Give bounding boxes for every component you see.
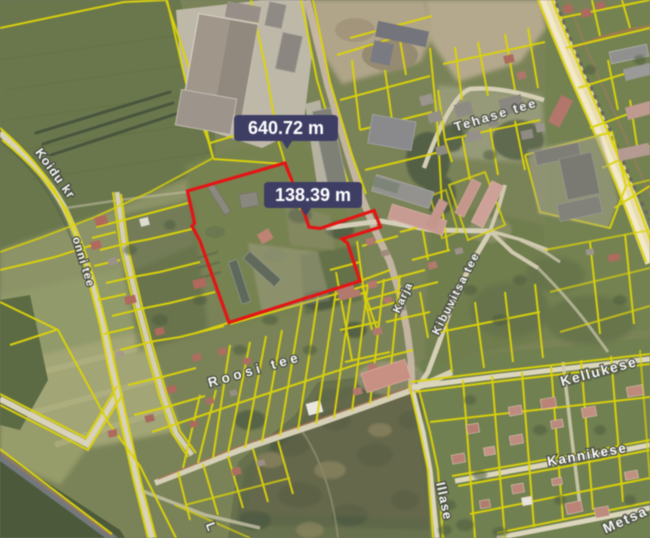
svg-text:640.72 m: 640.72 m (248, 118, 324, 138)
svg-text:138.39 m: 138.39 m (275, 185, 351, 205)
